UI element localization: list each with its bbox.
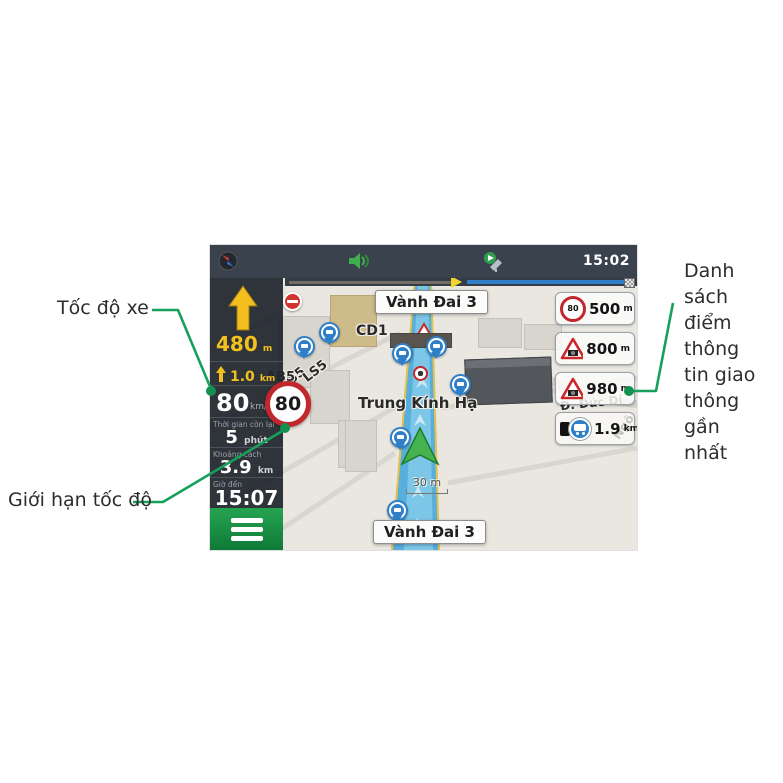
street-name: Vành Đai 3 bbox=[386, 293, 477, 311]
map-scale: 30 m bbox=[406, 476, 448, 494]
speed-limit-sign: 80 bbox=[265, 381, 311, 427]
distance-left-value: 3.9 bbox=[220, 457, 252, 478]
distance-left-unit: km bbox=[258, 466, 273, 476]
traffic-list-label: Danh sách điểm thông tin giao thông gần … bbox=[684, 258, 780, 466]
clock: 15:02 bbox=[583, 253, 630, 269]
hamburger-icon bbox=[231, 518, 263, 523]
poi-icon bbox=[454, 378, 467, 391]
speed-limit-sign-icon: 80 bbox=[560, 296, 586, 322]
arrival-value: 15:07 bbox=[210, 489, 283, 507]
poi-icon bbox=[430, 340, 443, 353]
map-poi-pin[interactable] bbox=[450, 374, 471, 395]
distance-unit: km bbox=[260, 374, 275, 384]
traffic-item-speed-limit[interactable]: 80 500 m bbox=[555, 292, 635, 325]
speed-camera-warning-icon bbox=[560, 337, 583, 360]
map-poi-pin[interactable] bbox=[390, 427, 411, 448]
status-bar: 15:02 bbox=[210, 245, 637, 278]
distance-value: 480 bbox=[216, 332, 258, 356]
speed-limit-label: Giới hạn tốc độ bbox=[8, 489, 152, 511]
traffic-distance: 980 bbox=[586, 380, 617, 398]
map-poi-pin[interactable] bbox=[387, 500, 408, 521]
building bbox=[345, 420, 377, 472]
traffic-distance: 1.9 bbox=[594, 420, 621, 438]
second-maneuver-row[interactable]: 1.0 km bbox=[210, 361, 283, 386]
map-scale-text: 30 m bbox=[406, 476, 448, 489]
traffic-list-label-line: nhất bbox=[684, 440, 780, 466]
compass-icon[interactable] bbox=[218, 251, 238, 271]
street-name: Vành Đai 3 bbox=[384, 523, 475, 541]
menu-button[interactable] bbox=[210, 508, 283, 550]
bus-stop-icon bbox=[569, 418, 591, 440]
poi-icon bbox=[396, 347, 409, 360]
street-sign-bottom: Vành Đai 3 bbox=[373, 520, 486, 544]
arrival-time-row[interactable]: Giờ đến 15:07 bbox=[210, 477, 283, 509]
next-maneuver-distance[interactable]: 480 m bbox=[216, 332, 272, 356]
time-left-unit: phút bbox=[244, 436, 268, 446]
satellite-status-icon[interactable] bbox=[482, 251, 506, 272]
traffic-list-label-line: Danh sách bbox=[684, 258, 780, 310]
time-left-value: 5 bbox=[225, 427, 238, 448]
map-label-cd1: CD1 bbox=[356, 323, 388, 339]
route-progress-remaining bbox=[467, 280, 625, 284]
route-progress-bar[interactable] bbox=[285, 278, 637, 286]
traffic-unit: m bbox=[621, 384, 630, 394]
mini-maneuver-arrow-icon bbox=[215, 366, 227, 382]
traffic-info-list: 80 500 m 800 m 980 m 1.9 km bbox=[555, 292, 635, 445]
poi-icon bbox=[394, 431, 407, 444]
speed-camera-warning-icon bbox=[560, 377, 583, 400]
vehicle-speed-label: Tốc độ xe bbox=[57, 297, 149, 319]
map-poi-pin[interactable] bbox=[319, 322, 340, 343]
traffic-item-poi[interactable]: 1.9 km bbox=[555, 412, 635, 445]
traffic-distance: 500 bbox=[589, 300, 620, 318]
map-poi-pin[interactable] bbox=[426, 336, 447, 357]
time-left-row[interactable]: Thời gian còn lại 5 phút bbox=[210, 417, 283, 448]
street-sign-top: Vành Đai 3 bbox=[375, 290, 488, 314]
vehicle-speed-callout-line bbox=[152, 310, 211, 389]
map-poi-pin[interactable] bbox=[294, 336, 315, 357]
distance-left-row[interactable]: Khoảng cách 3.9 km bbox=[210, 447, 283, 478]
traffic-distance: 800 bbox=[586, 340, 617, 358]
poi-icon bbox=[298, 340, 311, 353]
speaker-icon[interactable] bbox=[348, 251, 370, 271]
traffic-unit: km bbox=[624, 424, 637, 434]
poi-icon bbox=[323, 326, 336, 339]
building bbox=[478, 318, 522, 348]
map-scale-bracket bbox=[406, 489, 448, 494]
finish-flag-icon bbox=[624, 278, 635, 288]
traffic-list-label-line: tin giao bbox=[684, 362, 780, 388]
map-poi-pin[interactable] bbox=[392, 343, 413, 364]
traffic-list-label-line: thông gần bbox=[684, 388, 780, 440]
speed-limit-value: 80 bbox=[275, 393, 301, 415]
road-camera-sign-icon bbox=[413, 366, 428, 381]
traffic-list-label-line: điểm thông bbox=[684, 310, 780, 362]
building-dark bbox=[464, 356, 553, 405]
traffic-unit: m bbox=[621, 344, 630, 354]
traffic-unit: m bbox=[623, 304, 632, 314]
traffic-item-camera[interactable]: 980 m bbox=[555, 372, 635, 405]
speed-value: 80 bbox=[216, 389, 249, 417]
poi-icon bbox=[391, 504, 404, 517]
next-maneuver-arrow-icon[interactable] bbox=[210, 282, 283, 332]
map-no-entry-pin[interactable] bbox=[283, 292, 302, 311]
navigator-screen: Vành Đai 3 Vành Đai 3 CD1 LS5 LS5 AB5 Tr… bbox=[210, 245, 637, 550]
distance-value: 1.0 bbox=[230, 369, 255, 385]
distance-unit: m bbox=[263, 344, 272, 354]
route-progress-done bbox=[289, 281, 453, 284]
traffic-item-camera[interactable]: 800 m bbox=[555, 332, 635, 365]
